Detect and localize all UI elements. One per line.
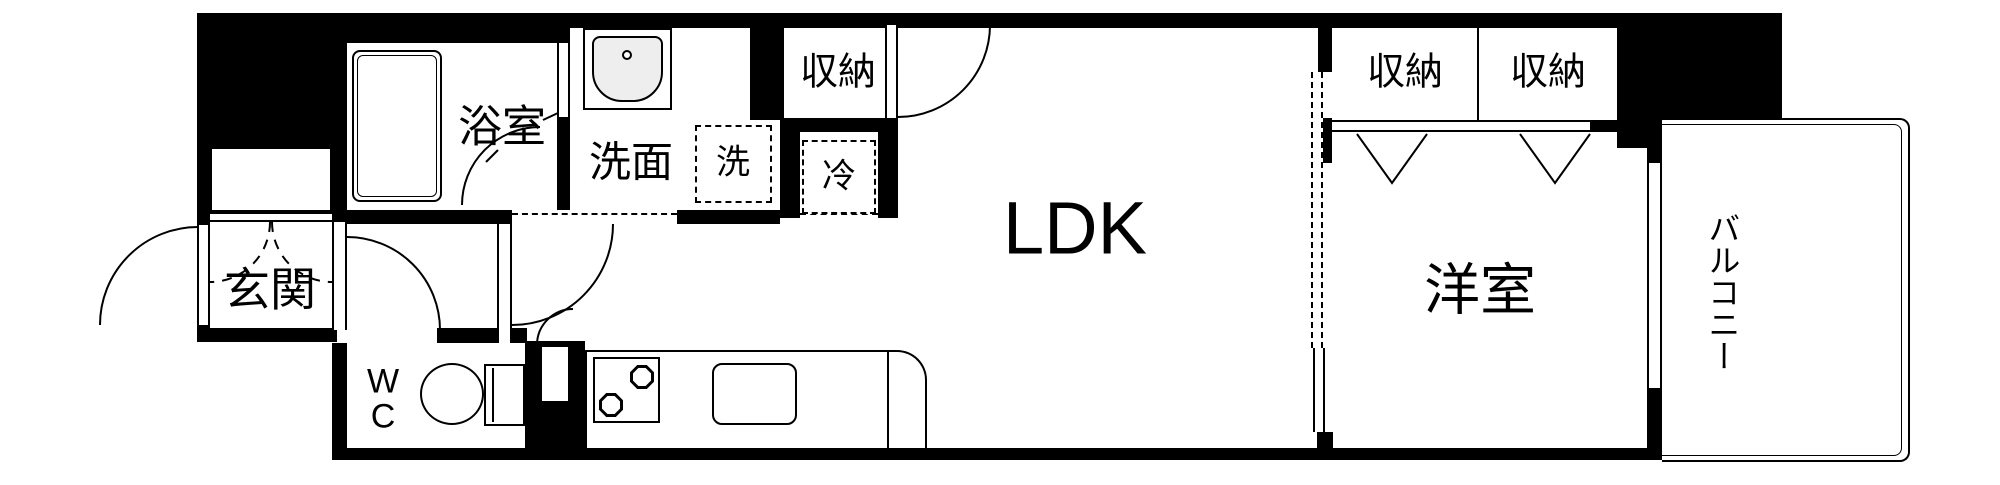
entrance-door-arc: [100, 227, 198, 325]
ldk-label: LDK: [1003, 190, 1147, 265]
genkan-label: 玄関: [224, 267, 316, 314]
wc-door-arc: [347, 237, 440, 330]
bath-label-leader: [486, 150, 498, 162]
closet-b-label: 収納: [1510, 54, 1586, 93]
hall-closet-door-arc: [898, 25, 990, 117]
western-room-label: 洋室: [1424, 261, 1536, 318]
washer-space-label: 洗: [716, 146, 750, 181]
wc-label: W C: [367, 364, 399, 433]
closet-folding-door-mark: [1357, 134, 1427, 183]
washroom-label: 洗面: [589, 142, 673, 185]
wc-label-line1: W: [367, 364, 399, 399]
wc-label-line2: C: [367, 399, 399, 434]
hall-closet-label: 収納: [800, 54, 876, 93]
closet-folding-door-mark: [1520, 134, 1590, 183]
bathroom-label: 浴室: [458, 106, 546, 151]
closet-a-label: 収納: [1367, 54, 1443, 93]
door-swing-overlay: [0, 0, 2000, 485]
balcony-label: バルコニー: [1706, 212, 1739, 372]
kitchen-entry-arc: [537, 309, 573, 345]
floor-plan: 玄関 W C 浴室 洗面 洗 収納 冷 LDK 収納 収納 洋室 バルコニー: [0, 0, 2000, 485]
fridge-space-label: 冷: [822, 160, 856, 195]
